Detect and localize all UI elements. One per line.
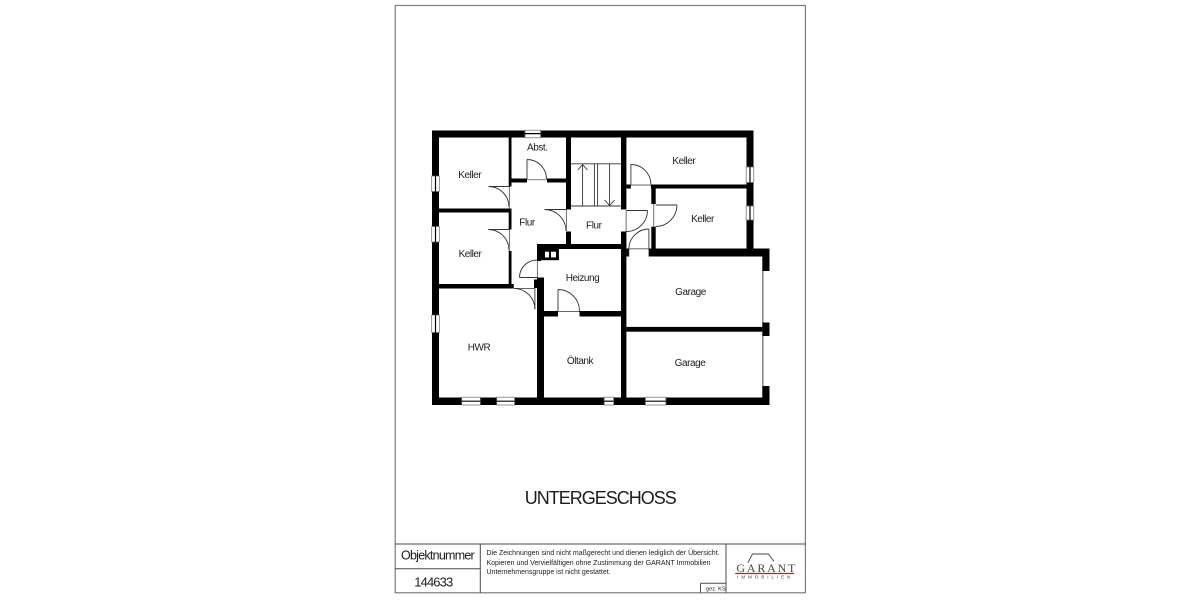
svg-text:Garage: Garage xyxy=(675,287,707,298)
svg-text:Keller: Keller xyxy=(458,170,482,181)
svg-text:Keller: Keller xyxy=(459,249,483,260)
svg-text:144633: 144633 xyxy=(414,574,453,589)
svg-text:Unternehmensgruppe ist nicht g: Unternehmensgruppe ist nicht gestattet. xyxy=(487,569,611,576)
svg-text:Keller: Keller xyxy=(691,214,715,225)
svg-text:Flur: Flur xyxy=(519,218,536,229)
svg-text:gez. KS: gez. KS xyxy=(706,587,726,593)
svg-text:Flur: Flur xyxy=(586,221,603,232)
svg-text:Kopieren und Vervielfältigen o: Kopieren und Vervielfältigen ohne Zustim… xyxy=(487,560,711,567)
svg-text:Keller: Keller xyxy=(672,156,696,167)
svg-text:IMMOBILIEN: IMMOBILIEN xyxy=(737,575,793,580)
svg-text:Heizung: Heizung xyxy=(566,273,600,284)
svg-text:GARANT: GARANT xyxy=(736,561,797,575)
svg-text:Garage: Garage xyxy=(675,358,707,369)
svg-text:Die Zeichnungen sind nicht maß: Die Zeichnungen sind nicht maßgerecht un… xyxy=(487,549,720,557)
svg-text:Objektnummer: Objektnummer xyxy=(401,549,475,563)
svg-text:UNTERGESCHOSS: UNTERGESCHOSS xyxy=(525,488,677,508)
svg-text:Abst.: Abst. xyxy=(527,143,548,154)
svg-text:HWR: HWR xyxy=(468,343,491,354)
svg-text:Öltank: Öltank xyxy=(567,355,595,367)
